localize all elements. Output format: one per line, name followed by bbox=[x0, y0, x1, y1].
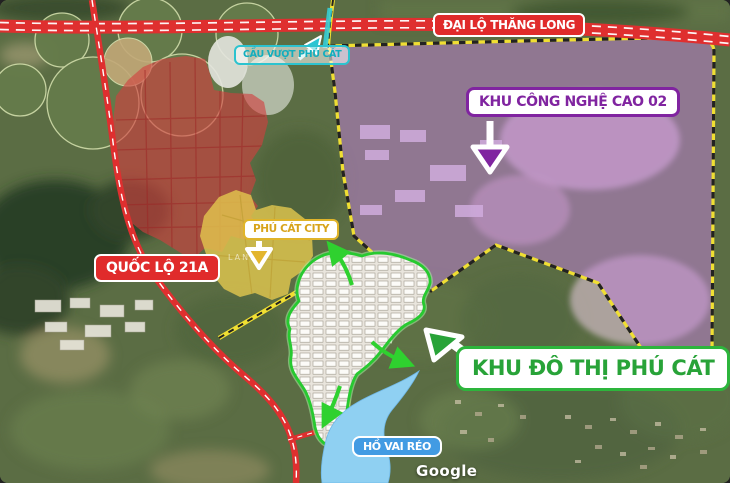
label-cau-vuot-phu-cat: CẦU VƯỢT PHÚ CÁT bbox=[234, 45, 350, 65]
label-ho-vai-reo: HỒ VAI RÉO bbox=[352, 436, 442, 457]
label-khu-cong-nghe-cao-02: KHU CÔNG NGHỆ CAO 02 bbox=[466, 87, 680, 117]
label-khu-do-thi-phu-cat: KHU ĐÔ THỊ PHÚ CÁT bbox=[456, 346, 730, 391]
satellite-map: LAND bbox=[0, 0, 730, 483]
label-phu-cat-city: PHÚ CÁT CITY bbox=[243, 219, 339, 240]
label-dai-lo-thang-long: ĐẠI LỘ THĂNG LONG bbox=[433, 13, 585, 37]
google-watermark: Google bbox=[416, 462, 477, 480]
map-canvas[interactable]: LAND bbox=[0, 0, 730, 483]
label-quoc-lo-21a: QUỐC LỘ 21A bbox=[94, 254, 220, 282]
